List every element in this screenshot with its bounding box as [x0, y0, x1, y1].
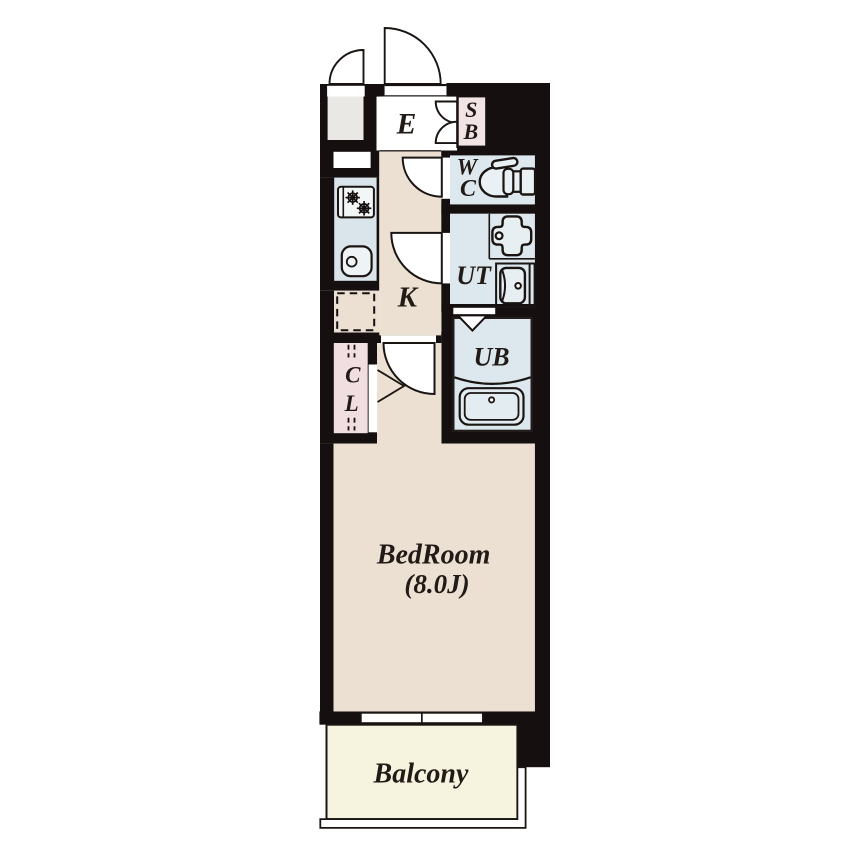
svg-text:(8.0J): (8.0J): [404, 569, 469, 599]
svg-text:BedRoom: BedRoom: [376, 540, 491, 571]
svg-text:L: L: [344, 391, 359, 416]
svg-text:E: E: [396, 108, 417, 140]
svg-text:UB: UB: [474, 343, 510, 372]
svg-text:C: C: [460, 176, 477, 202]
svg-text:K: K: [397, 281, 419, 313]
svg-text:UT: UT: [456, 261, 492, 290]
svg-text:B: B: [462, 119, 478, 144]
svg-text:Balcony: Balcony: [373, 759, 469, 790]
svg-text:C: C: [345, 362, 361, 387]
